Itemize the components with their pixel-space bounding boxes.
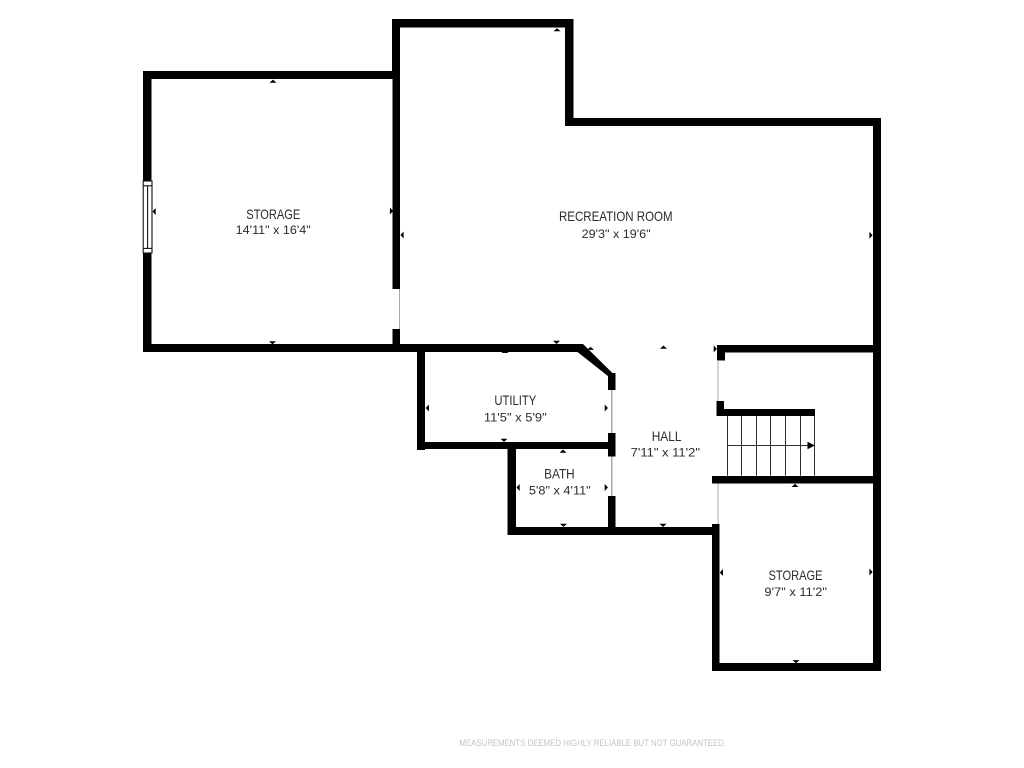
svg-text:14'11" x 16'4": 14'11" x 16'4" — [236, 223, 311, 237]
svg-text:29'3" x 19'6": 29'3" x 19'6" — [582, 227, 651, 241]
svg-text:STORAGE: STORAGE — [246, 207, 300, 222]
svg-text:BATH: BATH — [544, 467, 575, 482]
svg-text:UTILITY: UTILITY — [494, 393, 536, 408]
svg-text:MEASUREMENTS DEEMED HIGHLY REL: MEASUREMENTS DEEMED HIGHLY RELIABLE BUT … — [459, 738, 726, 749]
svg-text:9'7" x 11'2": 9'7" x 11'2" — [764, 585, 827, 599]
svg-text:RECREATION ROOM: RECREATION ROOM — [559, 209, 673, 224]
svg-text:7'11" x 11'2": 7'11" x 11'2" — [631, 446, 700, 460]
svg-text:5'8" x 4'11": 5'8" x 4'11" — [529, 484, 591, 498]
svg-text:HALL: HALL — [652, 429, 682, 444]
svg-text:11'5" x 5'9": 11'5" x 5'9" — [484, 410, 547, 424]
svg-text:STORAGE: STORAGE — [769, 568, 823, 583]
